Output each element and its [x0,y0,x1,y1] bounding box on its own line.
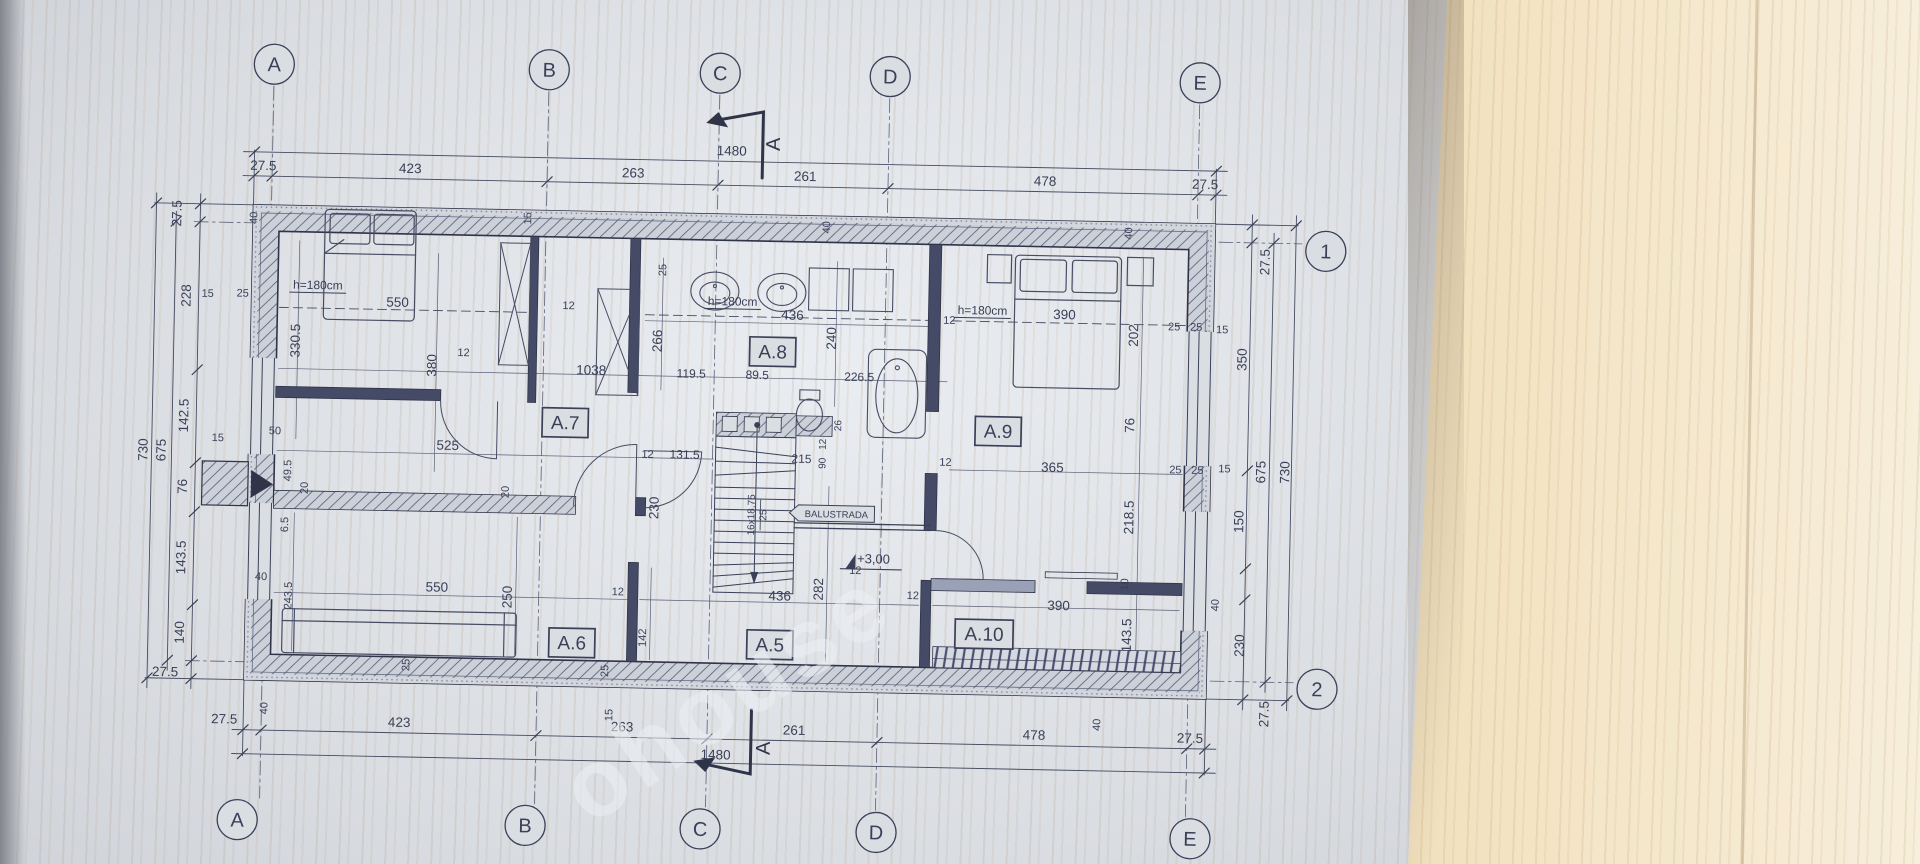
dimension-label: 25 [1191,465,1203,477]
dimension-label: h=180cm [958,303,1008,318]
section-letter-top: A [763,137,785,151]
grid-bubble-label: E [1183,829,1197,851]
terrace-deck-hatch [932,647,1180,673]
dimension-label: 6.5 [279,517,291,533]
dimension-label: 226.5 [844,370,875,385]
grid-bubble-label: E [1193,73,1207,95]
exterior-walls [244,205,1215,699]
room-label: A.6 [557,633,586,655]
dimension-label: 25 [599,665,611,677]
dimension-label: 675 [1253,461,1268,484]
grid-bubble-label: 1 [1320,241,1332,263]
dimension-label: 228 [178,284,193,307]
grid-bubble-label: C [713,63,728,85]
dimension-label: 261 [783,723,806,738]
dimension-label: 478 [1023,727,1046,742]
grid-bubble-label: D [869,822,884,844]
dimension-label: 40 [1123,227,1135,239]
dimension-label: 40 [821,221,833,233]
washer-icon [853,269,894,312]
dimension-label: +3,00 [857,551,890,567]
dimension-label: 27.5 [1256,701,1272,728]
photo-of-floor-plan: { "watermark": "ohouse", "palette": { "p… [0,0,1920,864]
dimension-label: 26 [833,420,844,432]
dimension-label: 27.5 [1192,177,1219,193]
dimension-label: 142.5 [176,398,192,432]
dimension-label: 675 [153,439,168,462]
dimension-label: 436 [781,307,804,322]
dimension-label: 390 [1053,307,1076,322]
dimension-label: 230 [646,497,661,520]
dimension-label: 25 [758,509,769,521]
dimension-label: 423 [388,715,411,730]
dimension-label: 250 [499,586,514,609]
dimension-label: 240 [824,327,839,350]
dimension-label: 730 [1277,461,1292,484]
dimension-label: 15 [201,288,213,300]
dimension-label: 15 [1218,463,1230,475]
dimension-label: 40 [1210,599,1222,611]
dimension-label: 15 [1216,324,1228,336]
dimension-label: 380 [424,354,439,377]
dimension-label: 16x18,75 [746,494,758,536]
dimension-label: 12 [612,586,624,598]
dimension-label: 330.5 [287,324,303,358]
dimension-label: 90 [817,457,828,469]
dimension-label: 27.5 [169,200,185,227]
pillow-icon [1072,260,1118,293]
dimension-label: 76 [175,479,190,494]
grid-bubble-label: A [267,54,281,76]
dimension-label: 10 [1119,578,1131,590]
dimension-label: 131.5 [669,447,700,462]
dimension-label: 12 [939,457,951,469]
grid-bubble-label: B [542,60,556,82]
dimension-label: 25 [1168,321,1180,333]
dimension-label: 27.5 [1177,730,1204,746]
dimension-label: 243.5 [282,582,295,610]
dimension-label: 12 [943,315,955,327]
dimension-label: 12 [907,590,919,602]
dimension-label: 350 [1234,348,1249,371]
dimension-label: 266 [650,330,665,353]
dimension-label: 12 [641,449,653,461]
nightstand-icon [987,255,1012,283]
dimension-label: 50 [269,425,281,437]
dimension-label: 15 [522,212,534,224]
dimension-label: 25 [1169,464,1181,476]
dimension-label: 25 [657,264,669,276]
dimension-label: 40 [248,212,260,224]
dimension-label: BALUSTRADA [805,509,869,521]
pillow-icon [1020,259,1067,292]
grid-bubble-label: B [518,815,532,837]
dimension-label: 230 [1232,634,1247,657]
dimension-label: 27.5 [211,711,238,727]
grid-bubble-label: 2 [1311,679,1323,701]
dimension-label: 263 [622,165,645,180]
room-label: A.7 [551,413,580,435]
dimension-label: 140 [172,621,187,644]
nightstand-icon [1127,257,1154,286]
dimension-label: 390 [1047,598,1070,613]
dimension-label: 89.5 [745,368,769,382]
dimension-label: 40 [1091,719,1103,731]
dimension-label: 20 [500,486,512,498]
dimension-label: 525 [436,438,459,453]
dimension-label: 202 [1126,324,1141,347]
dimension-label: 550 [386,295,409,310]
dimension-label: 423 [399,161,422,176]
wardrobe-crossed [498,243,641,396]
dimension-label: h=180cm [708,294,758,309]
dimension-label: 27.5 [1257,249,1273,276]
shower-icon [809,268,850,311]
room-label: A.10 [964,624,1004,646]
dimension-label: 20 [299,482,311,494]
dimension-label: 12 [818,438,829,450]
washbasin-icon [757,273,806,312]
dimension-label: 1038 [576,362,606,378]
dimension-label: 25 [400,659,412,671]
dimension-label: 25 [1190,322,1202,334]
dimension-label: h=180cm [293,278,343,293]
floor-plan-svg: A A 148027.542326326147827.51540404027.5… [0,0,1920,864]
dimension-label: 27.5 [250,158,277,174]
dimension-label: 40 [255,571,267,583]
dimension-label: 49.5 [282,460,294,482]
dimension-label: 143.5 [173,540,189,574]
dimension-label: 550 [425,579,448,594]
dimension-label: 261 [794,169,817,184]
dimension-label: 25 [236,288,248,300]
dimension-label: 27.5 [152,664,179,680]
dimension-label: 478 [1034,173,1057,188]
knee-wall-dashed-lines [279,307,1185,325]
dimension-label: 143.5 [1119,618,1135,652]
dimension-label: 365 [1041,460,1064,475]
dimension-label: 1480 [717,143,747,159]
dimension-label: 15 [212,432,224,444]
grid-bubble-label: A [230,809,244,831]
dimension-label: 12 [457,347,469,359]
dimension-label: 119.5 [677,366,707,381]
dimension-label: 215 [791,452,812,466]
dimension-label: 150 [1231,510,1246,533]
dimension-label: 730 [135,438,150,461]
section-letter-bottom: A [753,741,775,755]
dimension-label: 142 [637,628,649,647]
dimension-label: 76 [1122,418,1137,433]
grid-bubble-label: D [883,66,898,88]
sofa-bed-a6 [282,608,517,657]
room-label: A.8 [758,342,787,364]
room-label: A.9 [984,422,1013,444]
dimension-label: 12 [562,300,574,312]
dimension-label: 40 [258,702,270,714]
grid-bubble-label: C [693,819,708,841]
dimension-label: 218.5 [1121,500,1137,534]
